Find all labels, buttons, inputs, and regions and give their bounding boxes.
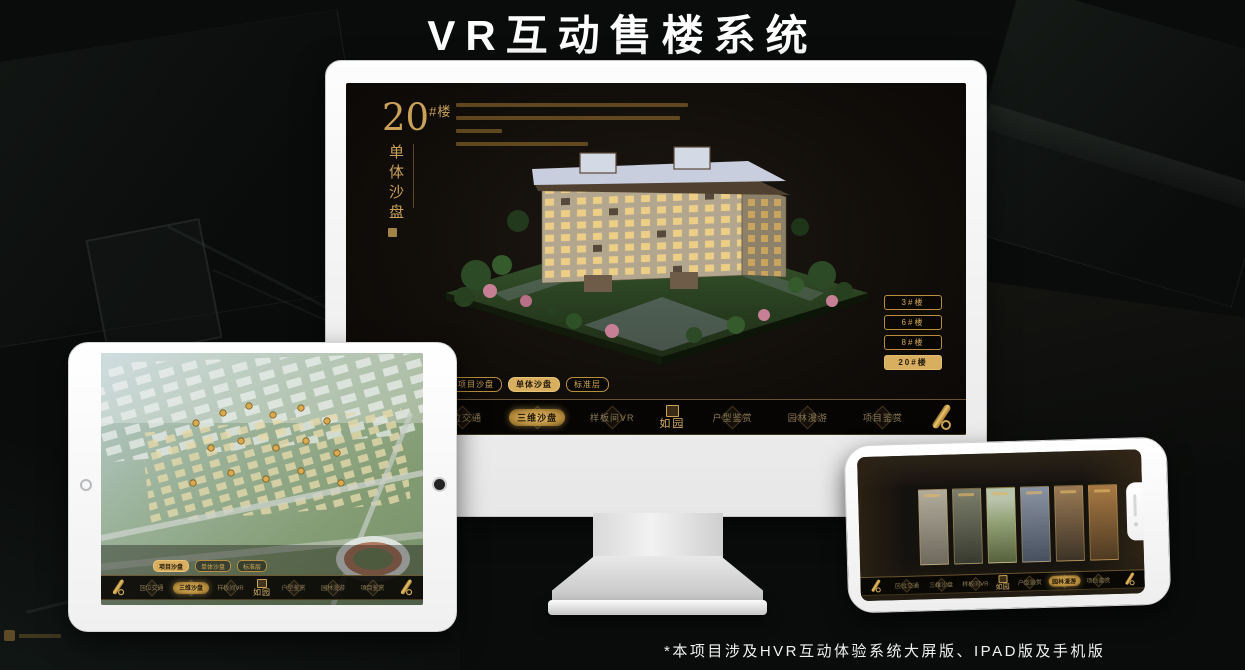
nav-item-garden-tour[interactable]: 园林漫游: [1050, 572, 1078, 590]
bg-road-line: [983, 104, 1245, 222]
phone-screen: 区位交通 三维沙盘 样板间VR 如园 户型鉴赏 园林漫游: [857, 449, 1145, 601]
project-logo: 如园: [253, 579, 271, 597]
text-line: [456, 103, 688, 107]
nav-item-location[interactable]: 区位交通: [893, 576, 921, 594]
scroll-menu-icon[interactable]: [1124, 572, 1135, 586]
tablet-camera-icon: [80, 479, 92, 491]
decorative-divider: [413, 144, 414, 208]
page-title: VR互动售楼系统: [0, 2, 1245, 63]
seal-icon: [257, 579, 267, 588]
scene-card[interactable]: [1054, 485, 1085, 562]
seal-icon: [666, 405, 679, 417]
phone-notch: [1126, 482, 1145, 540]
scroll-menu-icon[interactable]: [870, 579, 881, 593]
nav-item-showroom-vr[interactable]: 样板间VR: [584, 400, 640, 434]
scroll-menu-icon[interactable]: [111, 579, 125, 596]
floor-button-20[interactable]: 20#楼: [884, 355, 942, 370]
nav-item-unit-plans[interactable]: 户型鉴赏: [705, 400, 761, 434]
text-line: [456, 116, 680, 120]
scene-card-strip: [918, 484, 1119, 566]
unit-suffix: #楼: [429, 104, 451, 119]
subtab-standard-floor[interactable]: 标准层: [566, 377, 609, 392]
tablet-navbar: 区位交通 三维沙盘 样板间VR 如园 户型鉴赏 园林漫游: [101, 575, 423, 600]
tablet-screen: 项目沙盘 单体沙盘 标准层 区位交通 三维沙盘 样板间VR 如园: [101, 353, 423, 605]
floor-button-3[interactable]: 3#楼: [884, 295, 942, 310]
seal-icon: [998, 575, 1007, 583]
nav-item-3d-sandbox[interactable]: 三维沙盘: [509, 400, 565, 434]
nav-item-project-gallery[interactable]: 项目鉴赏: [855, 400, 911, 434]
nav-item-garden-tour[interactable]: 园林漫游: [316, 576, 350, 599]
project-logo: 如园: [995, 574, 1009, 590]
floor-button-8[interactable]: 8#楼: [884, 335, 942, 350]
unit-number: 20: [382, 96, 429, 139]
project-logo: 如园: [659, 405, 685, 429]
nav-item-project-gallery[interactable]: 项目鉴赏: [356, 576, 390, 599]
nav-item-showroom-vr[interactable]: 样板间VR: [961, 575, 989, 593]
scene-card[interactable]: [952, 488, 983, 565]
nav-item-3d-sandbox[interactable]: 三维沙盘: [927, 575, 955, 593]
footnote: *本项目涉及HVR互动体验系统大屏版、IPAD版及手机版: [664, 640, 1105, 661]
unit-title-vertical: 单体沙盘: [386, 144, 407, 224]
subtab-single-sandbox[interactable]: 单体沙盘: [508, 377, 560, 392]
subtab-project-sandbox[interactable]: 项目沙盘: [450, 377, 502, 392]
monitor-subtabs: 项目沙盘 单体沙盘 标准层: [450, 377, 609, 392]
nav-item-3d-sandbox[interactable]: 三维沙盘: [174, 576, 208, 599]
scroll-menu-icon[interactable]: [399, 579, 413, 596]
nav-item-location[interactable]: 区位交通: [135, 576, 169, 599]
scroll-menu-icon[interactable]: [930, 404, 952, 431]
bg-faint-plaque: [85, 218, 222, 360]
camera-icon: [1134, 522, 1138, 526]
bg-logo-mark: [4, 630, 15, 641]
scene-card[interactable]: [1020, 486, 1051, 563]
tablet-subtabs: 项目沙盘 单体沙盘 标准层: [153, 560, 267, 572]
speaker-icon: [1133, 494, 1137, 516]
subtab-single-sandbox[interactable]: 单体沙盘: [195, 560, 231, 572]
nav-item-showroom-vr[interactable]: 样板间VR: [214, 576, 248, 599]
nav-item-project-gallery[interactable]: 项目鉴赏: [1084, 571, 1112, 589]
nav-item-unit-plans[interactable]: 户型鉴赏: [277, 576, 311, 599]
scene-card[interactable]: [918, 489, 949, 566]
building-render[interactable]: [434, 125, 880, 373]
subtab-project-sandbox[interactable]: 项目沙盘: [153, 560, 189, 572]
scene-card[interactable]: [986, 487, 1017, 564]
floor-button-6[interactable]: 6#楼: [884, 315, 942, 330]
tablet-mockup: 项目沙盘 单体沙盘 标准层 区位交通 三维沙盘 样板间VR 如园: [68, 342, 457, 632]
monitor-stand-flare: [552, 556, 763, 604]
monitor-stand-foot: [548, 600, 767, 615]
scene-card[interactable]: [1088, 484, 1119, 561]
phone-mockup: 区位交通 三维沙盘 样板间VR 如园 户型鉴赏 园林漫游: [844, 437, 1172, 614]
seal-icon: [388, 228, 397, 237]
nav-item-garden-tour[interactable]: 园林漫游: [780, 400, 836, 434]
tablet-home-button[interactable]: [432, 477, 447, 492]
bg-logo-mark: [19, 634, 61, 638]
nav-item-unit-plans[interactable]: 户型鉴赏: [1016, 573, 1044, 591]
subtab-standard-floor[interactable]: 标准层: [237, 560, 267, 572]
floor-button-group: 3#楼 6#楼 8#楼 20#楼: [884, 295, 942, 370]
